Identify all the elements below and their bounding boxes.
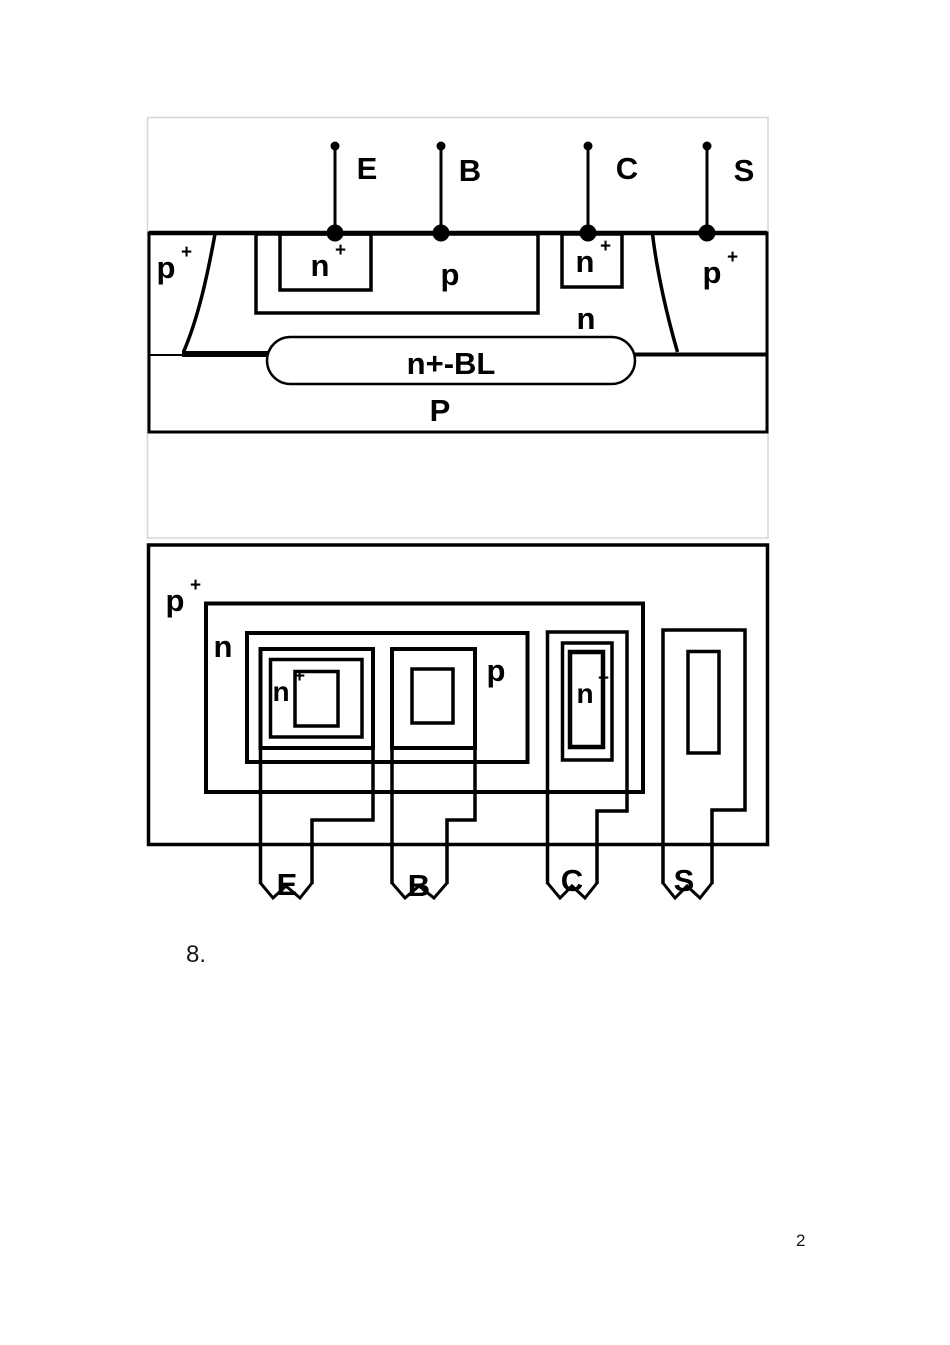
layout-terminal-label-e: E bbox=[277, 867, 298, 902]
layout-label-p-base: p bbox=[487, 653, 506, 688]
layout-terminal-label-s: S bbox=[674, 863, 695, 898]
terminal-label-c: C bbox=[616, 151, 638, 186]
region-label-p-base: p bbox=[441, 257, 460, 292]
cross-section-figure: E B C S p + n + p n + p + n n+-BL P bbox=[148, 118, 769, 539]
terminal-label-e: E bbox=[357, 151, 378, 186]
layout-terminal-label-b: B bbox=[408, 868, 430, 903]
region-label-p-plus-left: p bbox=[157, 250, 176, 285]
layout-label-p-plus: p bbox=[166, 583, 185, 618]
device-diagram-canvas: E B C S p + n + p n + p + n n+-BL P bbox=[0, 0, 950, 1345]
layout-label-p-plus-sup: + bbox=[190, 575, 201, 596]
contact-dot bbox=[327, 225, 344, 242]
region-label-n-plus-collector-sup: + bbox=[600, 236, 611, 257]
layout-label-n-plus-emitter: n bbox=[272, 676, 289, 707]
region-label-p-plus-right-sup: + bbox=[727, 247, 738, 268]
page-number: 2 bbox=[796, 1231, 805, 1251]
region-label-n-plus-emitter: n bbox=[311, 248, 330, 283]
lead-top-dot bbox=[331, 142, 340, 151]
layout-label-n-plus-collector: n bbox=[576, 678, 593, 709]
region-label-n-plus-collector: n bbox=[576, 244, 595, 279]
list-item-number: 8. bbox=[186, 941, 206, 969]
layout-figure: p + n p n + n + E B C S bbox=[149, 545, 768, 903]
region-label-buried-layer: n+-BL bbox=[407, 346, 496, 381]
terminal-label-s: S bbox=[734, 153, 755, 188]
layout-p-plus-outline bbox=[149, 545, 768, 845]
lead-top-dot bbox=[437, 142, 446, 151]
contact-dot bbox=[433, 225, 450, 242]
layout-label-n-plus-collector-sup: + bbox=[598, 668, 609, 689]
region-label-p-plus-right: p bbox=[703, 255, 722, 290]
region-label-n-epi: n bbox=[577, 301, 596, 336]
layout-terminal-label-c: C bbox=[561, 863, 583, 898]
contact-dot bbox=[580, 225, 597, 242]
region-label-p-plus-left-sup: + bbox=[181, 242, 192, 263]
layout-label-n-plus-emitter-sup: + bbox=[294, 666, 305, 687]
terminal-label-b: B bbox=[459, 153, 481, 188]
layout-label-n-well: n bbox=[214, 629, 233, 664]
lead-top-dot bbox=[703, 142, 712, 151]
contact-dot bbox=[699, 225, 716, 242]
lead-top-dot bbox=[584, 142, 593, 151]
region-label-n-plus-emitter-sup: + bbox=[335, 240, 346, 261]
region-label-substrate: P bbox=[430, 393, 451, 428]
